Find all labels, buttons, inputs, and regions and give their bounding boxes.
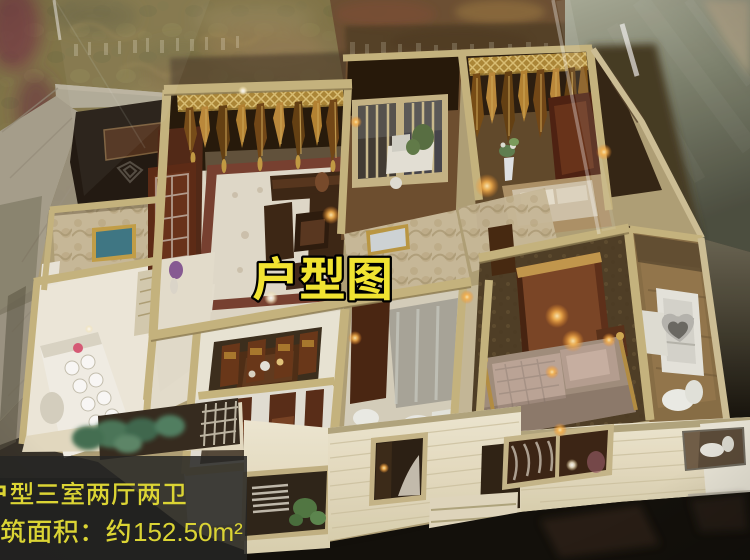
svg-text:152.50m²: 152.50m² (133, 517, 243, 547)
